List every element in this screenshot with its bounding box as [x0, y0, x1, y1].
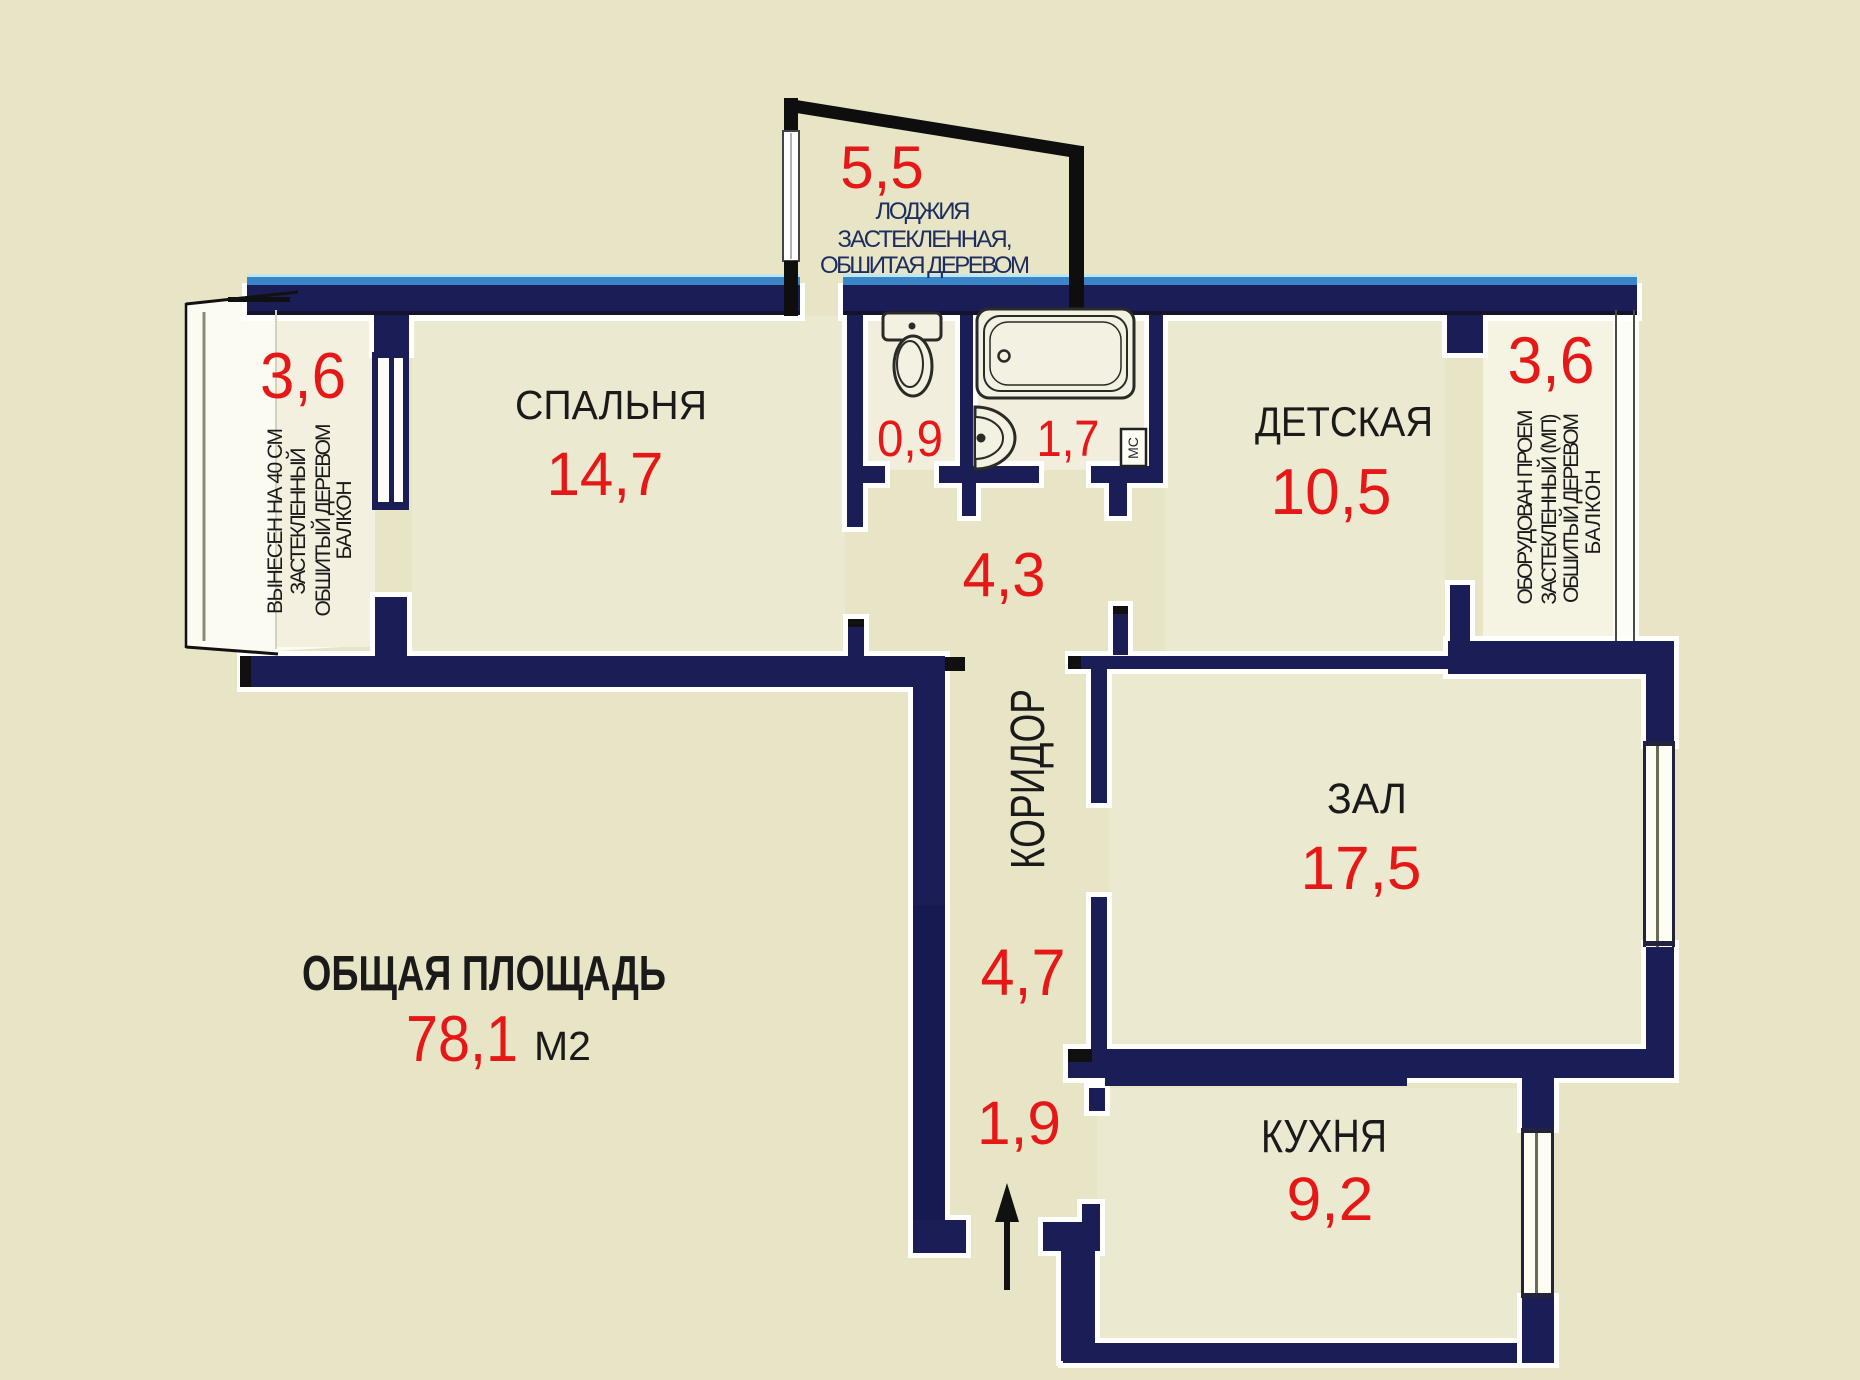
svg-text:МС: МС [1125, 437, 1141, 459]
svg-text:ЗАСТЕКЛЕННЫЙ (МП): ЗАСТЕКЛЕННЫЙ (МП) [1537, 414, 1561, 605]
svg-text:3,6: 3,6 [260, 339, 346, 412]
svg-text:5,5: 5,5 [840, 134, 923, 201]
svg-text:ЗАЛ: ЗАЛ [1327, 775, 1407, 823]
svg-text:4,3: 4,3 [963, 541, 1046, 610]
svg-text:10,5: 10,5 [1271, 455, 1392, 528]
svg-text:ОБШИТАЯ ДЕРЕВОМ: ОБШИТАЯ ДЕРЕВОМ [820, 252, 1030, 279]
svg-text:78,1: 78,1 [406, 1002, 518, 1075]
svg-text:9,2: 9,2 [1287, 1165, 1374, 1233]
svg-text:1,7: 1,7 [1037, 410, 1100, 467]
svg-text:ОБШИТЫЙ ДЕРЕВОМ: ОБШИТЫЙ ДЕРЕВОМ [1559, 413, 1583, 603]
svg-text:КОРИДОР: КОРИДОР [1002, 689, 1055, 869]
svg-text:М2: М2 [534, 1023, 591, 1069]
svg-text:ДЕТСКАЯ: ДЕТСКАЯ [1255, 398, 1433, 445]
svg-text:БАЛКОН: БАЛКОН [333, 481, 356, 560]
svg-text:ЛОДЖИЯ: ЛОДЖИЯ [876, 198, 971, 225]
svg-text:3,6: 3,6 [1508, 323, 1595, 397]
svg-text:17,5: 17,5 [1301, 834, 1422, 902]
svg-text:СПАЛЬНЯ: СПАЛЬНЯ [515, 382, 707, 428]
svg-text:ОБШИТЫЙ ДЕРЕВОМ: ОБШИТЫЙ ДЕРЕВОМ [311, 424, 335, 617]
svg-text:0,9: 0,9 [877, 410, 943, 467]
svg-text:ОБЩАЯ ПЛОЩАДЬ: ОБЩАЯ ПЛОЩАДЬ [302, 947, 666, 1001]
svg-text:1,9: 1,9 [977, 1089, 1061, 1157]
svg-text:КУХНЯ: КУХНЯ [1261, 1110, 1387, 1162]
svg-text:БАЛКОН: БАЛКОН [1582, 470, 1605, 555]
svg-text:ОБОРУДОВАН ПРОЕМ: ОБОРУДОВАН ПРОЕМ [1514, 410, 1537, 605]
svg-text:ЗАСТЕКЛЕННАЯ,: ЗАСТЕКЛЕННАЯ, [838, 226, 1013, 253]
svg-text:14,7: 14,7 [547, 440, 664, 508]
svg-text:4,7: 4,7 [981, 935, 1066, 1009]
svg-text:ВЫНЕСЕН НА 40 СМ: ВЫНЕСЕН НА 40 СМ [264, 428, 287, 614]
svg-text:ЗАСТЕКЛЕННЫЙ: ЗАСТЕКЛЕННЫЙ [286, 448, 310, 595]
